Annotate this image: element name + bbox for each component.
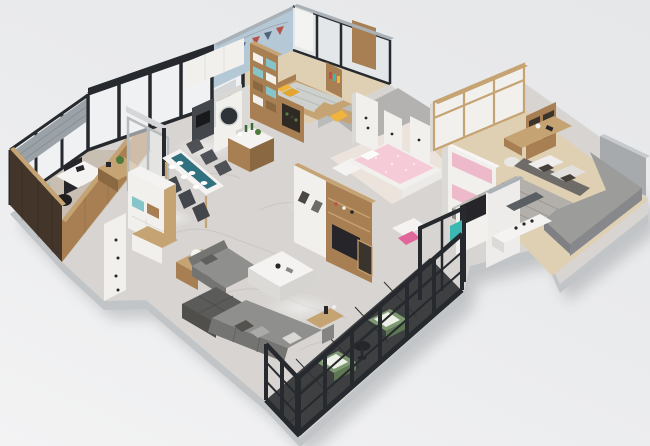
wardrobe-edge: [442, 146, 448, 215]
entry-door-panel: [104, 213, 126, 301]
bottle: [285, 112, 288, 115]
bottle: [294, 118, 297, 121]
floorplan-render: [0, 0, 650, 446]
toiletry: [514, 226, 517, 229]
decor-item: [334, 202, 338, 206]
bowl: [275, 263, 280, 268]
decor-item: [342, 206, 346, 210]
figurine: [324, 306, 328, 314]
door-handle: [367, 127, 370, 130]
toiletry: [530, 219, 533, 222]
door-handle: [391, 133, 394, 136]
book: [333, 74, 336, 81]
plant: [255, 129, 261, 135]
plant: [116, 156, 124, 164]
media-wall-white: [294, 165, 326, 258]
book: [329, 72, 332, 79]
glass-cabinet: [358, 240, 372, 276]
door-handle: [365, 117, 368, 120]
toiletry: [522, 222, 525, 225]
door-panel: [356, 92, 378, 152]
door-edge: [352, 92, 356, 144]
decor-item: [106, 162, 111, 167]
book: [337, 76, 340, 83]
decor-item: [350, 210, 354, 214]
render-canvas: [0, 0, 650, 446]
decor-ball: [332, 305, 336, 309]
desk-lamp: [536, 124, 541, 129]
bottle: [290, 115, 293, 118]
door-handle: [418, 139, 421, 142]
cup: [238, 132, 242, 136]
washer-door: [220, 107, 238, 125]
